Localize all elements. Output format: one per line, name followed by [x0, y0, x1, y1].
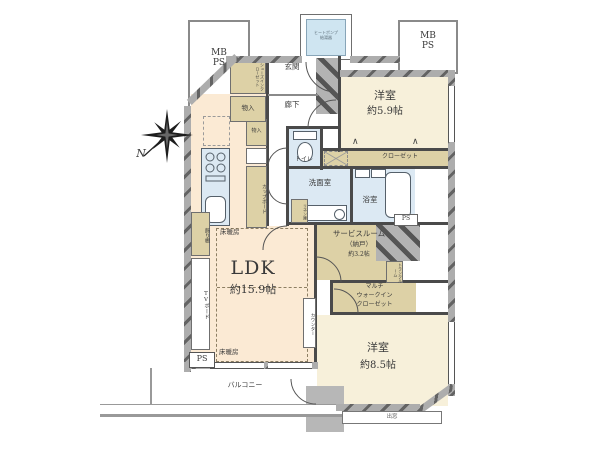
room-hallway — [268, 126, 286, 226]
bedroom85-size: 約8.5帖 — [330, 360, 426, 372]
mb-label: MB — [190, 48, 248, 58]
floor-heating-label-lower: 床暖房 — [219, 349, 239, 356]
compass-north-label: N — [134, 148, 148, 161]
bathtub — [385, 172, 411, 218]
mwic-l2: ウォークイン — [333, 293, 416, 300]
balcony-label: バルコニー — [200, 381, 290, 389]
wall — [286, 222, 451, 225]
wall — [350, 166, 353, 224]
window — [210, 362, 264, 369]
bay-window: 出窓 — [342, 411, 442, 424]
linen-closet: リネン庫 — [291, 199, 308, 223]
hanger-rod-icon: ∧ — [412, 137, 419, 147]
ps-label: PS — [190, 58, 248, 68]
window — [448, 322, 455, 384]
ps-bath-shaft: PS — [394, 214, 418, 226]
bathroom-label: 浴室 — [354, 196, 386, 205]
counter: カウンター — [303, 298, 316, 348]
compass: N — [134, 108, 196, 170]
heat-pump-unit: ヒートポンプ 給湯器 — [300, 14, 352, 60]
wall — [286, 126, 340, 129]
refrigerator-space — [203, 116, 230, 146]
hanger-rod-icon: ∧ — [352, 137, 359, 147]
wall — [286, 166, 451, 169]
window — [448, 86, 455, 142]
window — [268, 362, 312, 369]
compass-icon — [134, 108, 196, 170]
ldk-size: 約15.9帖 — [203, 284, 303, 297]
cupboard: カップボード — [246, 166, 267, 228]
futon-shelf-dashed — [324, 151, 348, 166]
entrance-label: 玄関 — [272, 63, 312, 72]
storage-entry: 物入 — [230, 96, 266, 122]
entry-porch-hatch — [316, 58, 340, 114]
bedroom59-name: 洋室 — [340, 90, 430, 103]
balcony-edge — [100, 404, 346, 417]
pipe-space-area — [415, 169, 448, 222]
mb-ps-right-shaft: MB PS — [398, 20, 458, 74]
trunk-room: トランクルーム — [386, 261, 403, 283]
storage-kitchen: 物入 — [246, 119, 267, 146]
wall — [350, 56, 400, 63]
service-room-name: サービスルーム — [315, 230, 403, 239]
bedroom59-size: 約5.9帖 — [340, 106, 430, 118]
entrance-step-line — [268, 94, 318, 96]
kitchen-pass — [246, 148, 267, 164]
vanity — [305, 205, 347, 221]
bay-window-label: 出窓 — [343, 414, 441, 420]
ps-ldk-shaft: PS — [189, 352, 215, 368]
mwic-l1: マルチ — [333, 284, 416, 291]
hallway-label: 廊下 — [272, 101, 312, 110]
wall — [336, 404, 420, 411]
toilet-tank — [293, 131, 317, 140]
ps-label: PS — [400, 41, 456, 51]
wall — [330, 312, 451, 315]
mb-label: MB — [400, 31, 456, 41]
wall — [286, 126, 289, 226]
display-shelf: 飾り棚 — [191, 212, 210, 256]
wall — [340, 70, 455, 77]
floor-plan: MB PS MB PS ヒートポンプ 給湯器 — [0, 0, 600, 450]
washroom-label: 洗面室 — [294, 179, 346, 188]
vanity-sink — [334, 209, 345, 220]
toilet-label: トイレ — [288, 157, 320, 164]
mwic-l3: クローゼット — [333, 302, 416, 309]
bath-door-panel — [355, 169, 370, 178]
ldk-name: LDK — [203, 258, 303, 280]
bath-door-panel — [371, 169, 386, 178]
service-room-size: 約3.2帖 — [315, 252, 403, 259]
heat-pump-box: ヒートポンプ 給湯器 — [306, 19, 346, 56]
floor-heating-label-upper: 床暖房 — [220, 229, 240, 236]
service-room-sub: （納戸） — [315, 241, 403, 248]
bedroom85-name: 洋室 — [330, 342, 426, 355]
closet-label: クローゼット — [352, 154, 448, 161]
